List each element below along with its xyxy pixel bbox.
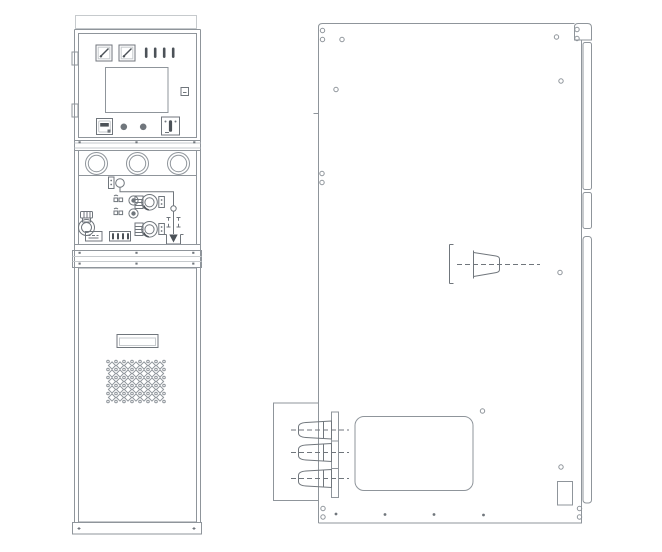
grille-diamond bbox=[148, 362, 155, 369]
grille-dot bbox=[155, 400, 158, 403]
round-port-icon bbox=[127, 153, 149, 175]
grille-diamond bbox=[140, 394, 147, 401]
rivet-hole-icon bbox=[334, 87, 338, 91]
base-plinth bbox=[73, 523, 202, 535]
flange-joints bbox=[332, 441, 339, 469]
round-port-icon bbox=[86, 153, 108, 175]
grille-dot bbox=[115, 392, 118, 395]
grille-dot bbox=[115, 360, 118, 363]
grille-dot bbox=[147, 384, 150, 387]
front-view bbox=[72, 16, 202, 535]
indicator-lamp-icon bbox=[163, 48, 166, 59]
bushing-flange bbox=[332, 412, 339, 498]
grille-diamond bbox=[108, 394, 115, 401]
rivet-hole-icon bbox=[480, 409, 484, 413]
grille-diamond bbox=[132, 362, 139, 369]
rear-flange-strip bbox=[583, 193, 592, 229]
grille-dot bbox=[131, 392, 134, 395]
grille-dot bbox=[107, 400, 110, 403]
grille-dot bbox=[163, 384, 166, 387]
rivet-hole-icon bbox=[558, 270, 562, 274]
grille-dot bbox=[163, 400, 166, 403]
rivet-hole-icon bbox=[321, 506, 325, 510]
analog-meter-icon bbox=[96, 45, 112, 61]
grille-dot bbox=[163, 392, 166, 395]
earth-arrow-icon bbox=[164, 235, 184, 245]
rear-flange-strip bbox=[583, 237, 592, 504]
grille-dot bbox=[131, 360, 134, 363]
grille-diamond bbox=[124, 378, 131, 385]
access-panel bbox=[355, 417, 473, 491]
grille-dot bbox=[115, 368, 118, 371]
grille-dot bbox=[163, 376, 166, 379]
bolt-dots bbox=[335, 513, 485, 517]
grille-dot bbox=[131, 400, 134, 403]
grille-diamond bbox=[140, 362, 147, 369]
rivet-hole-icon bbox=[554, 35, 558, 39]
ventilation-grille bbox=[107, 360, 166, 403]
grille-dot bbox=[123, 368, 126, 371]
grille-diamond bbox=[156, 370, 163, 377]
grille-dot bbox=[107, 392, 110, 395]
circuit-line bbox=[120, 187, 174, 206]
grille-diamond bbox=[108, 362, 115, 369]
grille-diamond bbox=[116, 362, 123, 369]
grille-dot bbox=[139, 384, 142, 387]
nameplate bbox=[86, 232, 103, 242]
grille-diamond bbox=[148, 378, 155, 385]
grille-dot bbox=[123, 360, 126, 363]
grille-diamond bbox=[124, 386, 131, 393]
grille-dot bbox=[115, 376, 118, 379]
round-port-inner bbox=[170, 155, 186, 171]
bolt-dot-icon bbox=[433, 513, 436, 516]
bolt-dot-icon bbox=[482, 514, 485, 517]
rivet-hole-icon bbox=[320, 28, 324, 32]
hmi-display bbox=[106, 68, 169, 113]
round-port-row bbox=[86, 153, 190, 175]
grille-diamond bbox=[124, 394, 131, 401]
operation-shaft-port bbox=[135, 222, 164, 238]
lv-compartment bbox=[72, 34, 197, 138]
grille-dot bbox=[147, 368, 150, 371]
grille-dot bbox=[155, 384, 158, 387]
rivet-hole-icon bbox=[321, 515, 325, 519]
grille-diamond bbox=[148, 386, 155, 393]
bolt-mark-icon bbox=[193, 527, 196, 530]
grille-dot bbox=[131, 384, 134, 387]
grille-diamond bbox=[140, 370, 147, 377]
grille-dot bbox=[155, 392, 158, 395]
grille-diamond bbox=[108, 386, 115, 393]
side-panel-outline bbox=[319, 24, 575, 524]
grille-diamond bbox=[132, 394, 139, 401]
grille-diamond bbox=[116, 386, 123, 393]
rivet-hole-icon bbox=[559, 79, 563, 83]
grille-dot bbox=[107, 368, 110, 371]
pilot-light-icon bbox=[140, 124, 147, 131]
round-port-inner bbox=[88, 155, 104, 171]
rail-lower bbox=[73, 245, 202, 268]
pilot-light-icon bbox=[121, 124, 128, 131]
mimic-label bbox=[109, 177, 115, 189]
cabinet-frame bbox=[75, 30, 201, 524]
rivet-holes bbox=[320, 27, 582, 519]
bolt-dot-icon bbox=[384, 513, 387, 516]
grille-diamond bbox=[148, 394, 155, 401]
indicator-lamp-icon bbox=[154, 48, 157, 59]
rivet-hole-icon bbox=[559, 465, 563, 469]
side-view bbox=[274, 24, 592, 524]
door-handle-icon bbox=[117, 335, 158, 348]
grille-dot bbox=[107, 360, 110, 363]
rear-flange-strip bbox=[583, 43, 592, 190]
mimic-diagram bbox=[79, 177, 184, 244]
lamp-node-icon bbox=[171, 206, 176, 211]
bolt-dot-icon bbox=[335, 513, 338, 516]
grille-diamond bbox=[156, 394, 163, 401]
grille-dot bbox=[155, 376, 158, 379]
grille-dot bbox=[131, 376, 134, 379]
button-labels bbox=[114, 195, 123, 214]
grille-dot bbox=[147, 376, 150, 379]
grille-dot bbox=[163, 360, 166, 363]
grille-diamond bbox=[116, 370, 123, 377]
grille-diamond bbox=[132, 386, 139, 393]
rail-upper bbox=[75, 141, 201, 151]
bolt-mark-icon bbox=[78, 527, 81, 530]
round-port-inner bbox=[129, 155, 145, 171]
grille-dot bbox=[139, 360, 142, 363]
grille-diamond bbox=[140, 386, 147, 393]
vent-cutout bbox=[558, 482, 573, 506]
grille-diamond bbox=[108, 378, 115, 385]
indicator-lamp-row bbox=[145, 48, 175, 59]
pushbuttons bbox=[114, 195, 138, 218]
grille-diamond bbox=[116, 394, 123, 401]
grille-diamond bbox=[140, 378, 147, 385]
rivet-hole-icon bbox=[320, 180, 324, 184]
grille-dot bbox=[115, 400, 118, 403]
grille-dot bbox=[131, 368, 134, 371]
grille-dot bbox=[123, 392, 126, 395]
mechanism-compartment bbox=[79, 151, 197, 245]
grille-dot bbox=[123, 376, 126, 379]
grille-dot bbox=[147, 392, 150, 395]
cable-bushings bbox=[291, 421, 349, 488]
grille-diamond bbox=[124, 362, 131, 369]
grille-dot bbox=[107, 376, 110, 379]
operation-shaft-port bbox=[135, 195, 164, 211]
grille-diamond bbox=[116, 378, 123, 385]
rivet-hole-icon bbox=[320, 171, 324, 175]
grille-dot bbox=[139, 392, 142, 395]
grille-dot bbox=[155, 360, 158, 363]
grille-dot bbox=[163, 368, 166, 371]
grille-diamond bbox=[124, 370, 131, 377]
busbar-node-icon bbox=[116, 179, 125, 188]
grille-diamond bbox=[148, 370, 155, 377]
grille-diamond bbox=[132, 378, 139, 385]
grille-diamond bbox=[156, 378, 163, 385]
roof-cap bbox=[76, 16, 197, 29]
technical-drawing-page bbox=[0, 0, 662, 552]
grille-diamond bbox=[156, 362, 163, 369]
grille-dot bbox=[147, 400, 150, 403]
grille-diamond bbox=[156, 386, 163, 393]
round-port-icon bbox=[168, 153, 190, 175]
grille-dot bbox=[123, 400, 126, 403]
grille-dot bbox=[115, 384, 118, 387]
indicator-lamp-icon bbox=[172, 48, 175, 59]
shaft-bushing bbox=[450, 245, 541, 284]
grille-dot bbox=[139, 376, 142, 379]
grille-dot bbox=[123, 384, 126, 387]
grille-diamond bbox=[108, 370, 115, 377]
cable-compartment-door bbox=[79, 268, 197, 522]
grille-dot bbox=[147, 360, 150, 363]
terminal-strip bbox=[110, 232, 131, 242]
grille-dot bbox=[155, 368, 158, 371]
grille-diamond bbox=[132, 370, 139, 377]
aux-button bbox=[181, 88, 189, 96]
energy-counter-icon bbox=[97, 119, 113, 135]
rivet-hole-icon bbox=[320, 37, 324, 41]
analog-meter-icon bbox=[119, 45, 135, 61]
grille-dot bbox=[139, 400, 142, 403]
indicator-lamp-icon bbox=[145, 48, 148, 59]
grille-dot bbox=[107, 384, 110, 387]
grille-dot bbox=[139, 368, 142, 371]
switchgear-drawing bbox=[0, 0, 662, 552]
selector-switch-icon bbox=[162, 117, 180, 135]
rivet-hole-icon bbox=[575, 27, 579, 31]
rivet-hole-icon bbox=[340, 37, 344, 41]
